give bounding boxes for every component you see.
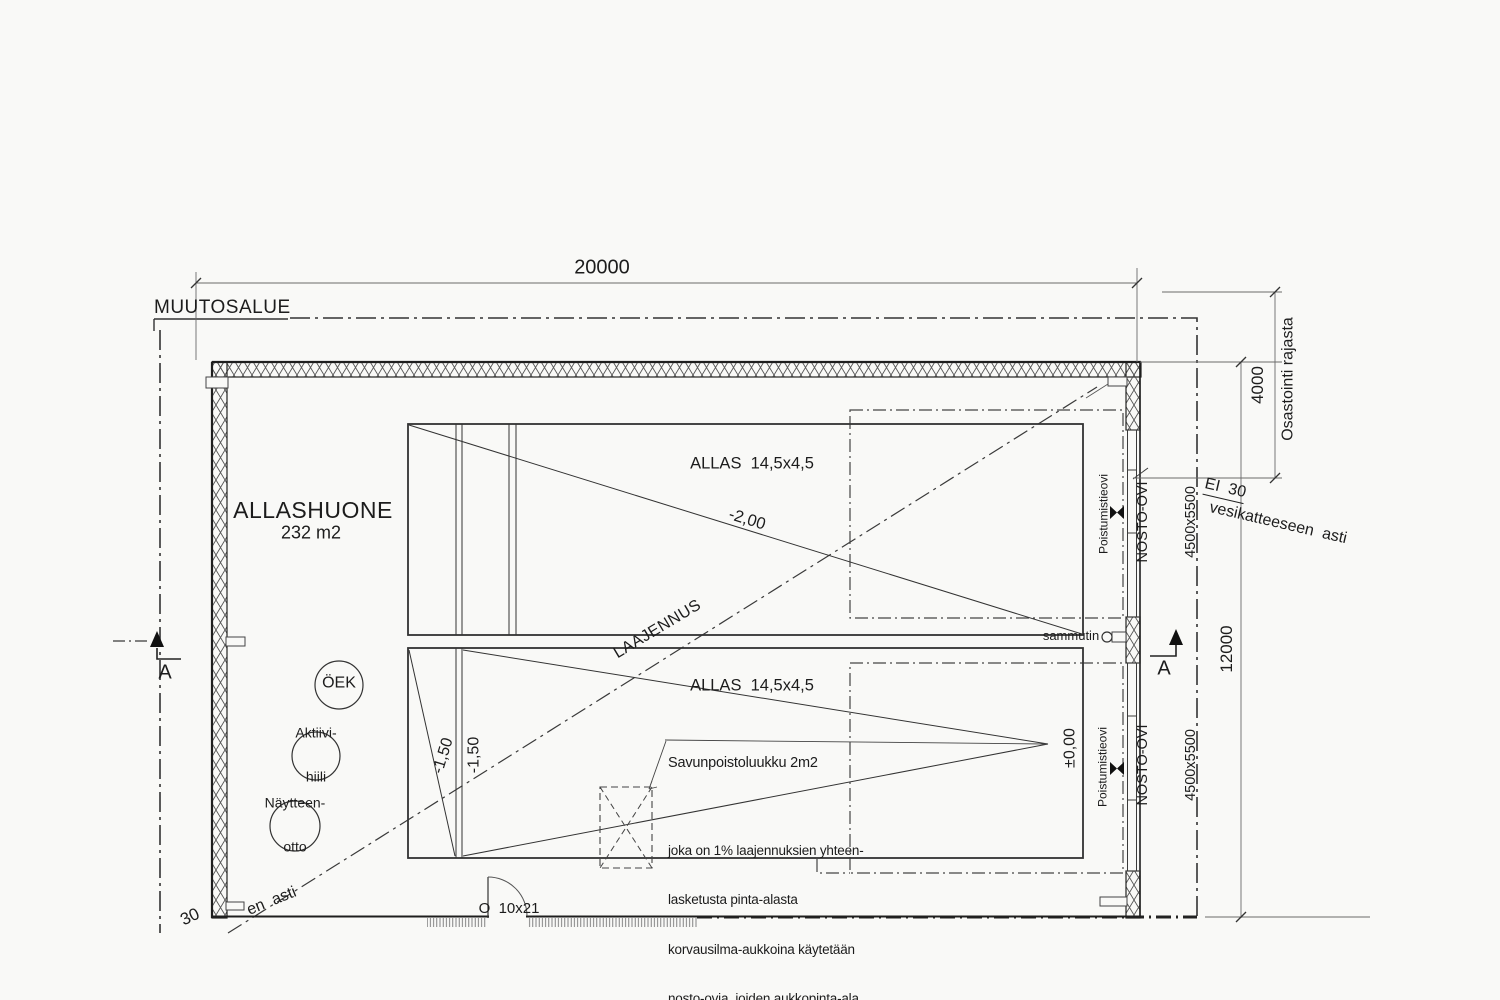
equipment-circle-sampling: Näytteen- otto	[265, 766, 326, 884]
smoke-note-line2: lasketusta pinta-alasta	[668, 892, 864, 908]
smoke-note-line4: nosto-ovia, joiden aukkopinta-ala	[668, 991, 864, 1000]
pool-lower-level-c: ±0,00	[1063, 728, 1080, 768]
section-letter-right: A	[1157, 659, 1170, 680]
dim-right-lower-label: 12000	[1218, 625, 1236, 672]
activated-carbon-line1: Aktiivi-	[295, 726, 336, 741]
room-name: ALLASHUONE	[233, 498, 393, 522]
bottom-door-label: O 10x21	[479, 901, 540, 917]
smoke-note-line1: joka on 1% laajennuksien yhteen-	[668, 843, 864, 859]
pool-lower-level-b: -1,50	[467, 737, 484, 773]
smoke-note: Savunpoistoluukku 2m2 joka on 1% laajenn…	[668, 722, 864, 1000]
extinguisher-label: sammutin	[1043, 629, 1099, 643]
compartment-boundary-note: Osastointi rajasta	[1281, 317, 1298, 441]
smoke-note-title: Savunpoistoluukku 2m2	[668, 756, 864, 771]
section-letter-left: A	[158, 663, 171, 684]
dim-right-upper-label: 4000	[1249, 366, 1267, 404]
exit-door-2-label: Poistumistieovi	[1097, 727, 1110, 807]
equipment-circle-oek: ÖEK	[322, 676, 356, 693]
lift-door-2-line2: 4500x5500	[1183, 724, 1199, 805]
sampling-line1: Näytteen-	[265, 796, 326, 811]
dim-top-label: 20000	[574, 258, 630, 279]
lift-door-1-line2: 4500x5500	[1183, 481, 1199, 562]
room-area: 232 m2	[281, 524, 341, 543]
lift-door-2-line1: NOSTO-OVI	[1135, 724, 1151, 805]
floor-plan-drawing: MUUTOSALUE 20000 ALLASHUONE 232 m2 ALLAS…	[0, 0, 1500, 1000]
extinguisher-symbol	[1102, 632, 1126, 642]
pool-upper-label: ALLAS 14,5x4,5	[690, 455, 814, 472]
smoke-note-line3: korvausilma-aukkoina käytetään	[668, 942, 864, 958]
expansion-diagonal-line	[113, 387, 1097, 933]
change-area-label: MUUTOSALUE	[154, 298, 291, 318]
sampling-line2: otto	[265, 840, 326, 855]
lift-door-2-label: NOSTO-OVI 4500x5500	[1103, 724, 1231, 805]
pool-lower-label: ALLAS 14,5x4,5	[690, 677, 814, 694]
pilasters	[206, 377, 1127, 910]
exit-door-1-label: Poistumistieovi	[1098, 474, 1111, 554]
lift-door-1-line1: NOSTO-OVI	[1135, 481, 1151, 562]
smoke-note-body: joka on 1% laajennuksien yhteen- lasketu…	[668, 810, 864, 1000]
